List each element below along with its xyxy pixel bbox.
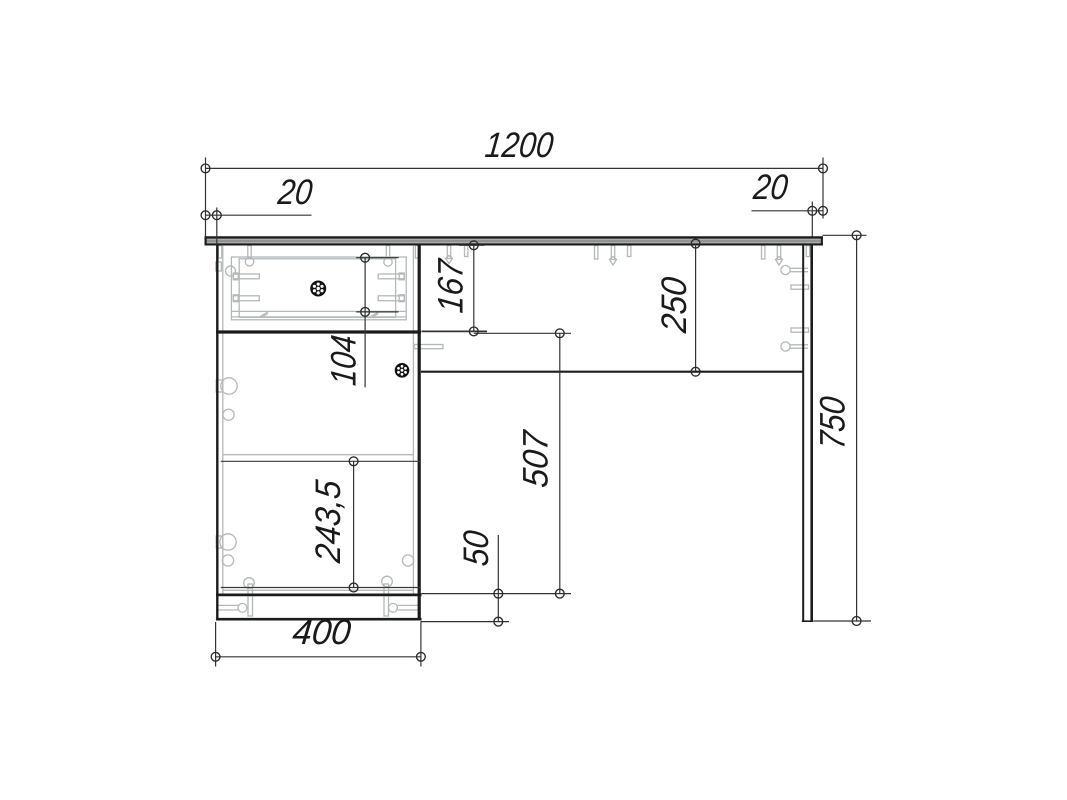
svg-text:250: 250 [654,275,694,335]
svg-text:1200: 1200 [483,125,555,165]
svg-text:20: 20 [275,172,314,212]
svg-text:243,5: 243,5 [308,478,348,565]
svg-text:50: 50 [456,528,496,567]
svg-text:400: 400 [291,612,353,652]
svg-text:507: 507 [515,428,555,489]
svg-text:20: 20 [751,167,790,207]
svg-text:104: 104 [323,333,363,387]
svg-text:750: 750 [812,394,852,450]
svg-text:167: 167 [430,257,470,315]
